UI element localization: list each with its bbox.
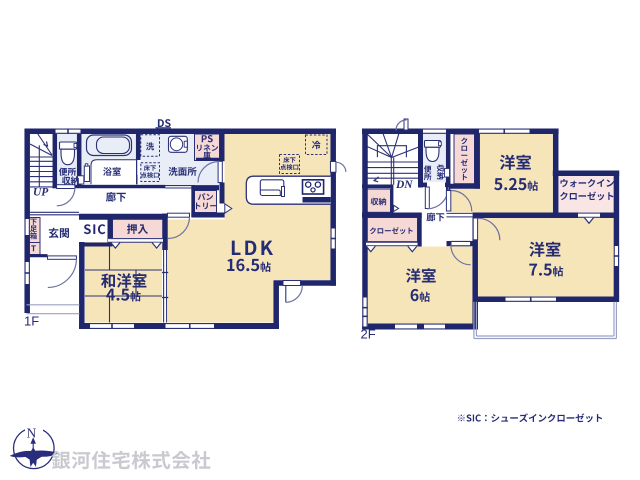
- svg-text:DN: DN: [395, 179, 413, 191]
- svg-text:N: N: [27, 426, 37, 441]
- svg-text:UP: UP: [33, 187, 49, 199]
- svg-text:1F: 1F: [24, 314, 39, 329]
- svg-text:2F: 2F: [361, 327, 376, 342]
